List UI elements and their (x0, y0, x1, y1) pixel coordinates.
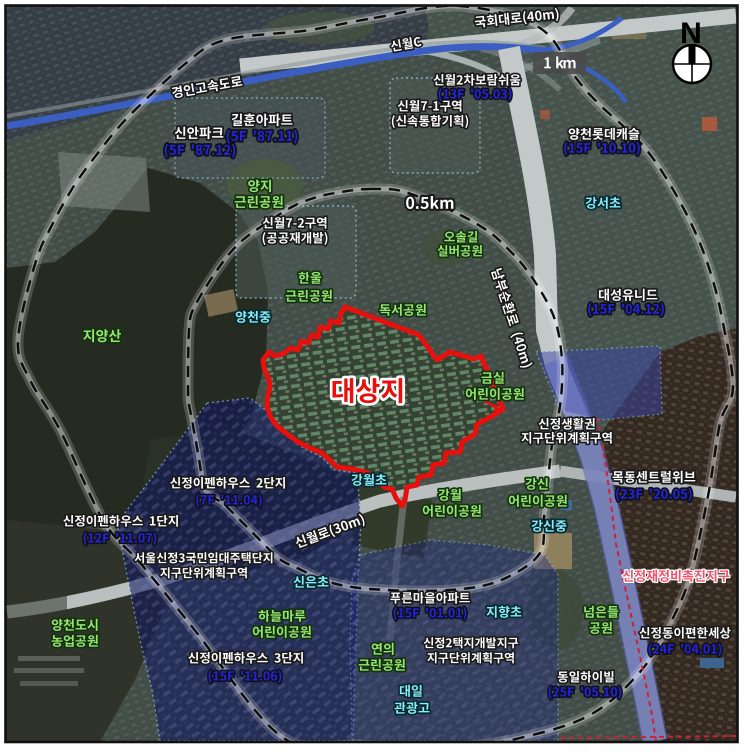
svg-text:N: N (680, 17, 702, 50)
